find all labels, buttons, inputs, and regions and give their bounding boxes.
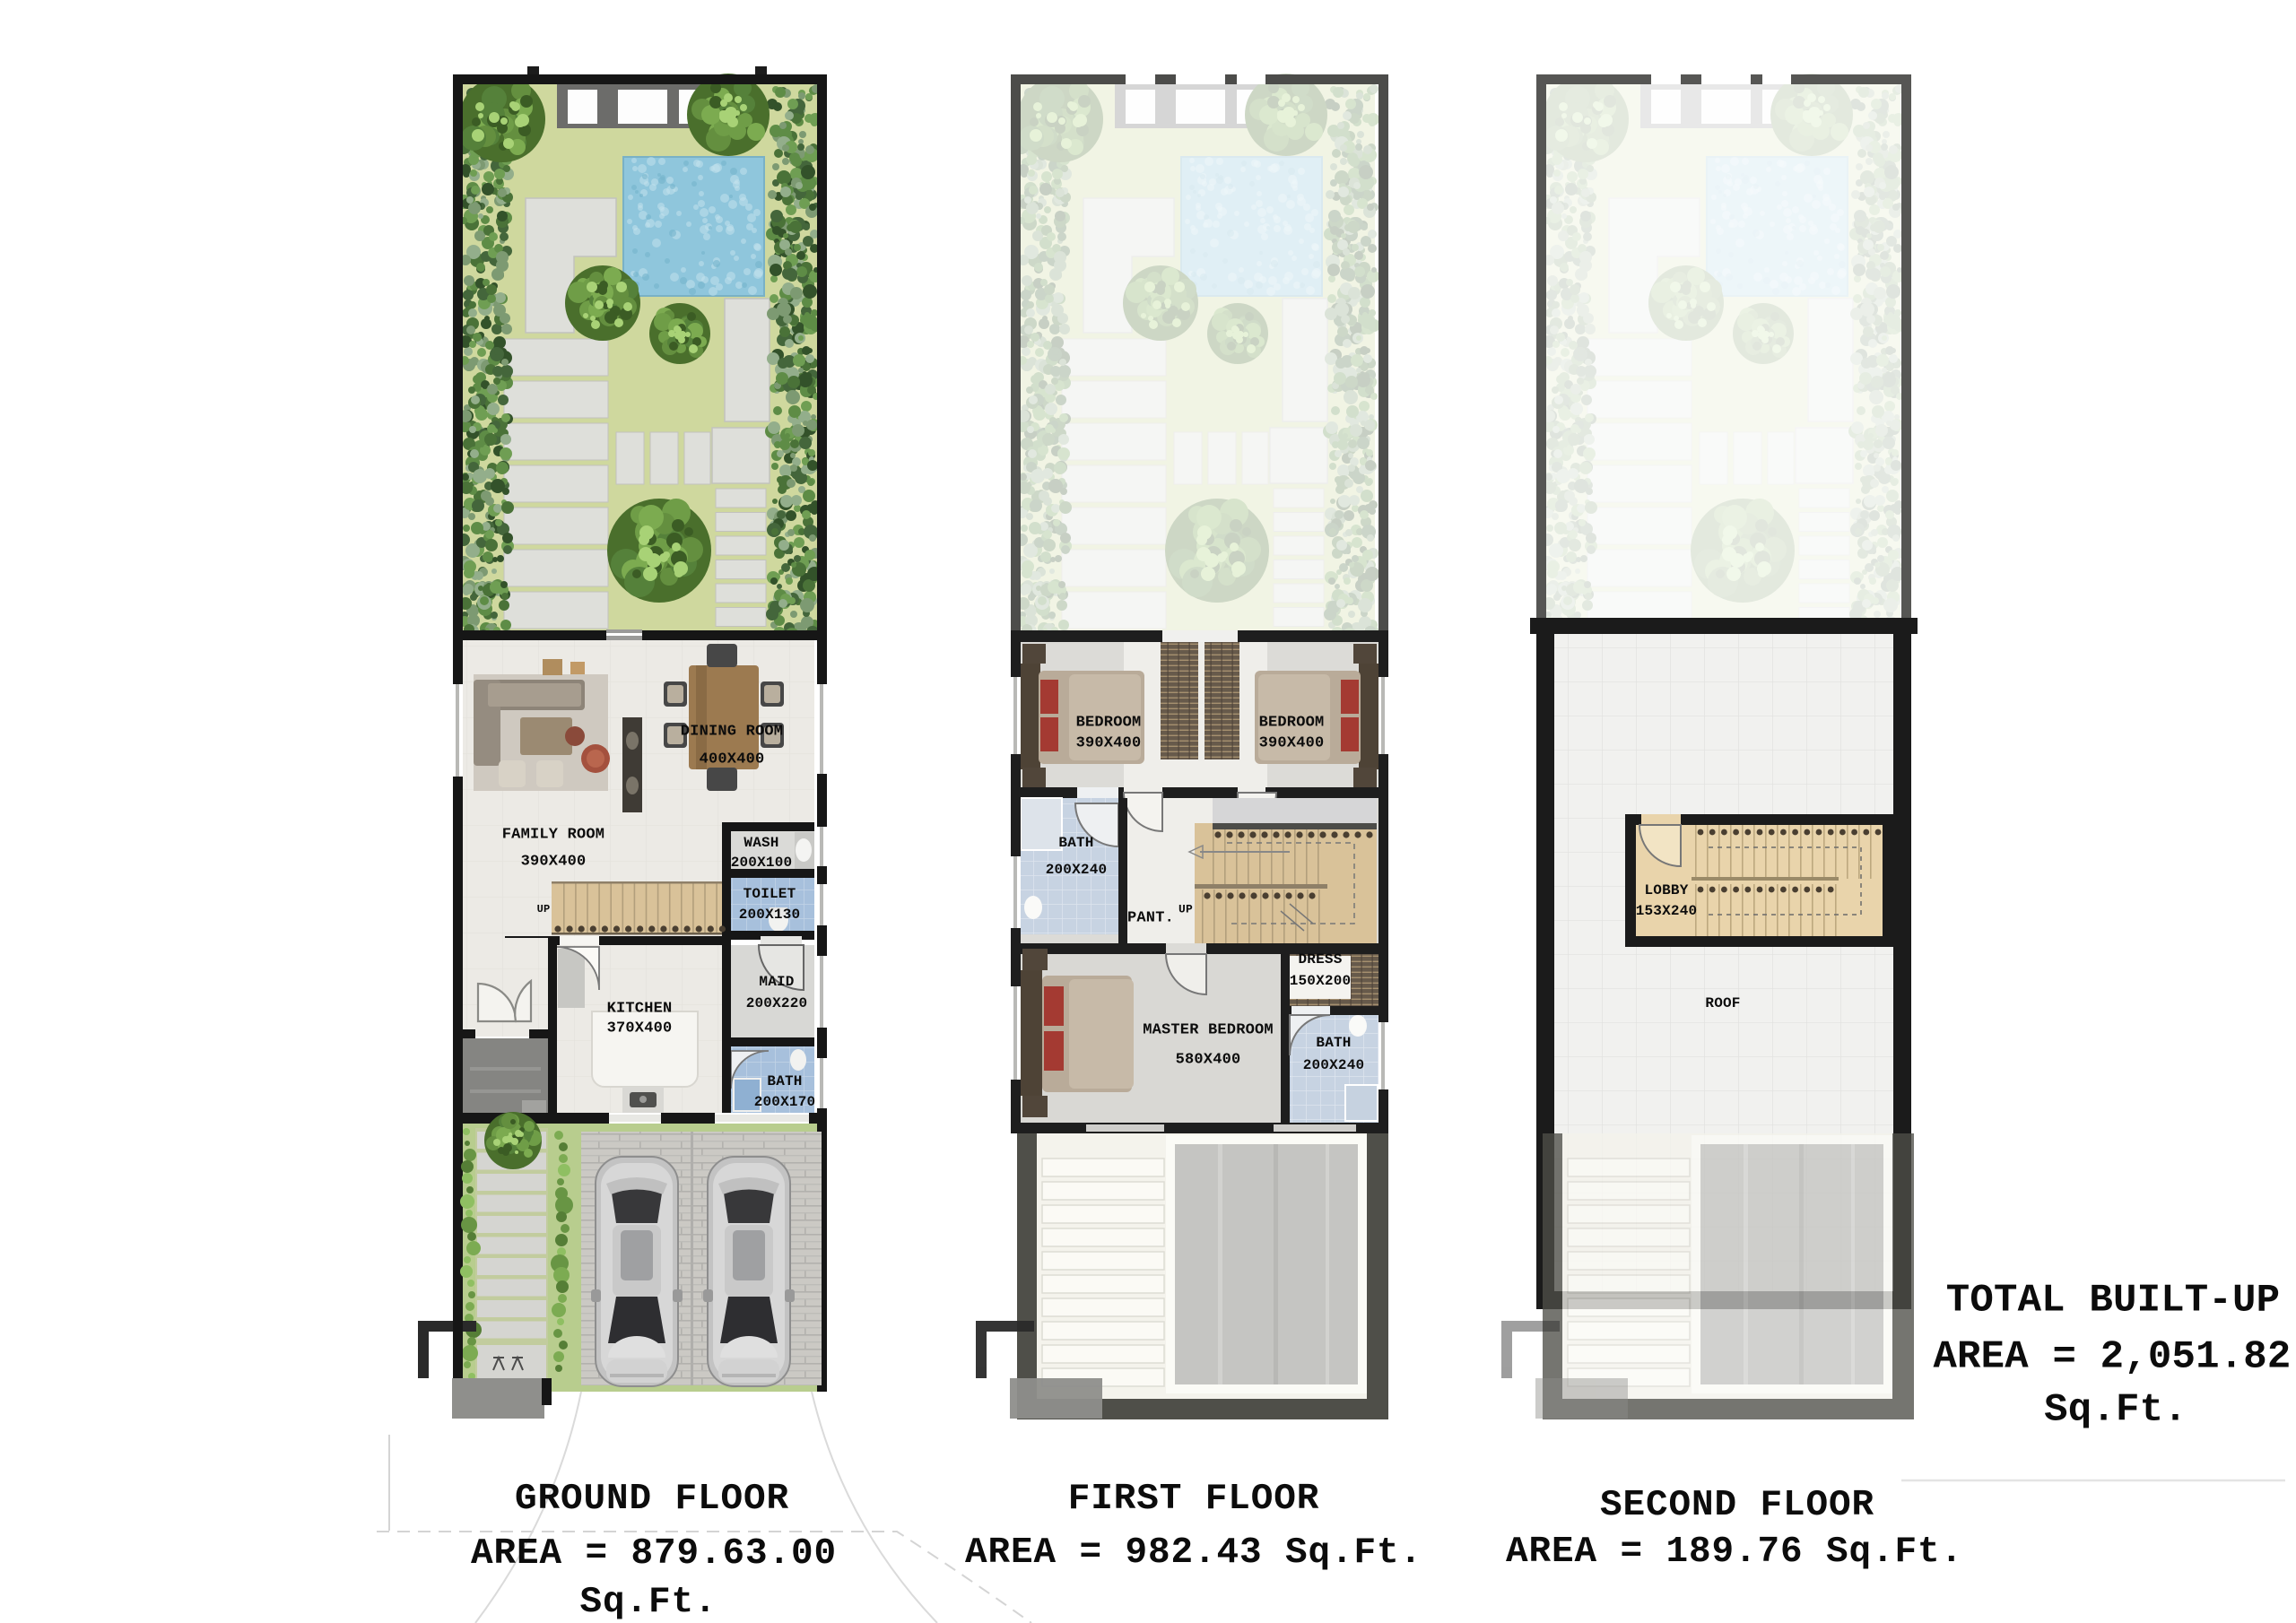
svg-text:MASTER BEDROOM: MASTER BEDROOM — [1143, 1021, 1274, 1038]
svg-text:PANT.: PANT. — [1127, 909, 1174, 926]
svg-text:GROUND FLOOR: GROUND FLOOR — [515, 1479, 789, 1520]
svg-text:WASH: WASH — [744, 835, 778, 851]
svg-text:TOTAL BUILT-UP: TOTAL BUILT-UP — [1946, 1279, 2280, 1324]
svg-text:Sq.Ft.: Sq.Ft. — [2044, 1388, 2187, 1433]
svg-text:FAMILY ROOM: FAMILY ROOM — [502, 826, 604, 843]
svg-text:AREA = 189.76 Sq.Ft.: AREA = 189.76 Sq.Ft. — [1506, 1532, 1963, 1573]
svg-text:DINING ROOM: DINING ROOM — [681, 723, 783, 740]
svg-text:200X130: 200X130 — [739, 907, 801, 923]
svg-text:390X400: 390X400 — [1076, 734, 1142, 751]
svg-text:LOBBY: LOBBY — [1644, 882, 1688, 898]
svg-text:AREA = 2,051.82: AREA = 2,051.82 — [1933, 1335, 2291, 1380]
svg-text:400X400: 400X400 — [700, 751, 765, 768]
svg-text:370X400: 370X400 — [607, 1020, 673, 1037]
svg-text:150X200: 150X200 — [1290, 973, 1352, 989]
svg-text:200X240: 200X240 — [1303, 1057, 1365, 1073]
svg-text:BATH: BATH — [767, 1073, 802, 1089]
svg-text:FIRST FLOOR: FIRST FLOOR — [1068, 1479, 1320, 1520]
svg-text:BATH: BATH — [1058, 835, 1093, 851]
svg-text:200X100: 200X100 — [731, 855, 793, 871]
svg-text:ROOF: ROOF — [1705, 995, 1740, 1011]
svg-text:BEDROOM: BEDROOM — [1259, 714, 1325, 731]
svg-text:390X400: 390X400 — [1259, 734, 1325, 751]
svg-text:AREA = 982.43 Sq.Ft.: AREA = 982.43 Sq.Ft. — [965, 1532, 1422, 1574]
svg-text:AREA = 879.63.00: AREA = 879.63.00 — [471, 1533, 837, 1575]
svg-text:MAID: MAID — [759, 974, 794, 990]
svg-text:SECOND FLOOR: SECOND FLOOR — [1600, 1485, 1874, 1526]
svg-text:UP: UP — [1178, 902, 1193, 916]
svg-text:200X240: 200X240 — [1046, 862, 1108, 878]
svg-text:KITCHEN: KITCHEN — [607, 1000, 673, 1017]
svg-text:200X170: 200X170 — [754, 1094, 816, 1110]
svg-text:DRESS: DRESS — [1298, 951, 1342, 968]
svg-text:TOILET: TOILET — [744, 886, 796, 902]
svg-text:200X220: 200X220 — [746, 995, 808, 1011]
svg-text:153X240: 153X240 — [1636, 903, 1698, 919]
svg-text:UP: UP — [537, 903, 551, 916]
svg-text:BEDROOM: BEDROOM — [1076, 714, 1142, 731]
svg-text:Sq.Ft.: Sq.Ft. — [579, 1582, 717, 1623]
svg-text:390X400: 390X400 — [521, 853, 587, 870]
svg-text:580X400: 580X400 — [1176, 1051, 1241, 1068]
svg-text:BATH: BATH — [1316, 1035, 1351, 1051]
